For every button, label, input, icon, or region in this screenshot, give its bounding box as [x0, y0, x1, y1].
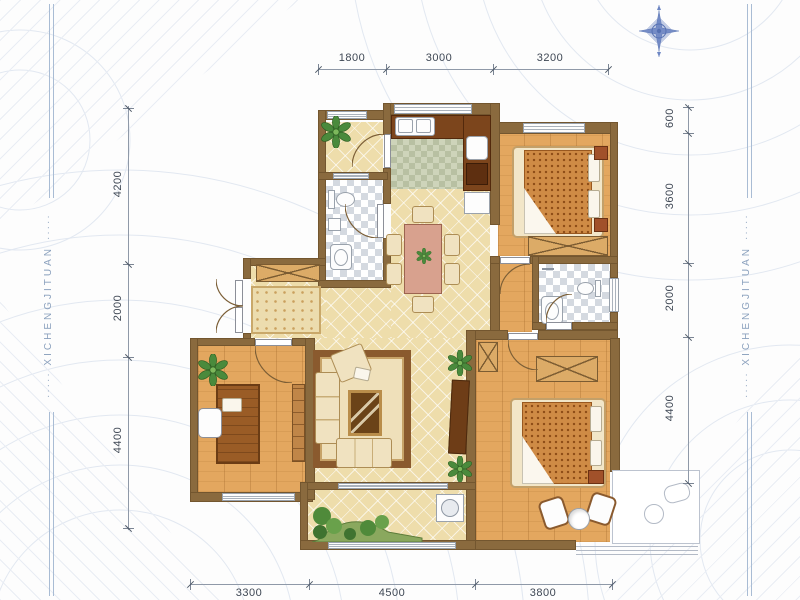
dining-chair	[412, 296, 434, 313]
washer-drum	[441, 499, 459, 517]
side-dots: ·····	[43, 214, 54, 241]
sink-basin	[334, 249, 348, 266]
side-label: XICHENGJITUAN	[43, 246, 54, 366]
bookshelf	[292, 384, 305, 462]
dim-tick	[683, 133, 694, 134]
desk	[216, 384, 260, 464]
wall-segment	[610, 122, 618, 278]
dim-label: 3600	[664, 166, 676, 226]
dim-label: 2000	[664, 268, 676, 328]
window-sill-lines	[576, 543, 698, 555]
dim-tick	[612, 579, 613, 590]
wall-segment	[243, 258, 251, 279]
pillow	[590, 406, 602, 432]
fridge	[464, 192, 490, 214]
entry-rug	[251, 286, 321, 334]
desk-chair	[198, 408, 222, 438]
frame-line-left-bottom	[49, 412, 54, 596]
bath-cabinet	[328, 218, 341, 231]
dim-tick	[123, 528, 134, 529]
floor-hall	[326, 288, 391, 338]
dim-tick	[683, 483, 694, 484]
frame-line-right-bottom	[747, 412, 752, 596]
dim-line-bottom	[190, 584, 612, 585]
door-arc-bedroom-2	[255, 346, 292, 383]
frame-line-right-top	[747, 4, 752, 198]
wall-segment	[490, 256, 500, 338]
door-arc-master	[508, 340, 538, 370]
door-leaf	[500, 257, 530, 264]
door-leaf	[384, 134, 391, 168]
dining-chair	[386, 234, 402, 256]
dim-label: 4400	[664, 378, 676, 438]
door-arc-balcony-top	[352, 134, 385, 167]
dim-label: 1800	[322, 52, 382, 64]
dim-label: 4500	[362, 587, 422, 599]
nightstand	[588, 470, 604, 484]
compass-icon	[633, 5, 685, 57]
dim-label: 2000	[112, 278, 124, 338]
wall-segment	[383, 103, 391, 135]
dim-label: 600	[664, 88, 676, 148]
dim-line-top	[318, 69, 608, 70]
wardrobe	[536, 356, 598, 382]
side-brand-text-left: ····· XICHENGJITUAN ·····	[43, 200, 54, 412]
plant-icon	[197, 354, 229, 386]
cabinet	[478, 342, 498, 372]
dim-tick	[123, 264, 134, 265]
door-leaf	[508, 333, 538, 340]
window	[338, 483, 448, 489]
plant-icon	[447, 456, 473, 482]
window	[333, 173, 369, 179]
dim-tick	[683, 263, 694, 264]
window	[523, 123, 585, 133]
door-arc-entry-upper	[216, 279, 243, 306]
dim-line-left	[128, 106, 129, 530]
dim-label: 4400	[112, 410, 124, 470]
wall-segment	[530, 256, 618, 264]
cooktop	[466, 163, 488, 185]
dim-tick	[123, 108, 134, 109]
dim-tick	[386, 64, 387, 75]
dim-tick	[683, 337, 694, 338]
coffee-table	[348, 390, 382, 436]
dim-tick	[123, 357, 134, 358]
mirror	[542, 268, 554, 270]
toilet-tank	[595, 280, 601, 297]
floorplan-page: ····· XICHENGJITUAN ····· ····· XICHENGJ…	[0, 0, 800, 600]
round-table	[568, 508, 590, 530]
dining-chair	[444, 234, 460, 256]
kitchen-sink-2	[466, 136, 488, 160]
pillow	[590, 440, 602, 466]
dim-label: 3300	[219, 587, 279, 599]
door-leaf	[546, 322, 572, 330]
door-arc-bathroom-1	[345, 204, 378, 238]
sofa-main	[336, 438, 392, 468]
dim-tick	[683, 107, 694, 108]
dim-tick	[318, 64, 319, 75]
side-brand-text-right: ····· XICHENGJITUAN ·····	[741, 200, 752, 412]
dim-label: 3200	[520, 52, 580, 64]
dim-tick	[475, 579, 476, 590]
door-arc-bathroom-2	[546, 294, 572, 322]
dim-line-right	[688, 105, 689, 483]
sink-basin	[416, 119, 431, 133]
entry-cabinet	[256, 264, 320, 282]
door-leaf	[377, 204, 384, 238]
stool-sketch	[644, 504, 664, 524]
door-arc-entry-lower	[216, 306, 243, 333]
dim-label: 3800	[513, 587, 573, 599]
wall-segment	[490, 103, 500, 225]
dining-chair	[386, 263, 402, 285]
dim-tick	[190, 579, 191, 590]
dim-label: 3000	[409, 52, 469, 64]
dim-tick	[493, 64, 494, 75]
toilet-bowl	[577, 282, 594, 295]
wall-segment	[318, 280, 391, 288]
plant-icon	[447, 350, 473, 376]
sink-basin	[398, 119, 413, 133]
side-label: XICHENGJITUAN	[741, 246, 752, 366]
wall-segment	[532, 256, 539, 330]
nightstand	[594, 146, 608, 160]
toilet-tank	[328, 190, 335, 209]
wall-segment	[190, 338, 255, 346]
wardrobe	[528, 236, 608, 256]
dining-chair	[444, 263, 460, 285]
dim-tick	[608, 64, 609, 75]
sofa-chaise	[315, 372, 340, 444]
frame-line-left-top	[49, 4, 54, 198]
wall-segment	[538, 330, 618, 340]
dining-chair	[412, 206, 434, 223]
dim-tick	[309, 579, 310, 590]
window	[394, 104, 472, 114]
side-dots: ·····	[741, 372, 752, 399]
window	[609, 278, 619, 312]
door-leaf	[255, 339, 292, 346]
plant-icon	[320, 116, 352, 148]
side-dots: ·····	[43, 372, 54, 399]
pillow	[588, 190, 600, 218]
side-dots: ·····	[741, 214, 752, 241]
wall-segment	[490, 256, 500, 264]
table-centerpiece-plant-icon	[416, 248, 432, 264]
wall-segment	[610, 338, 620, 472]
window	[222, 493, 295, 501]
nightstand	[594, 218, 608, 232]
floor-kitchen	[391, 139, 463, 189]
desk-item	[222, 398, 242, 412]
wall-segment	[300, 482, 308, 548]
door-arc-bedroom-1	[500, 264, 530, 294]
wall-segment	[466, 540, 576, 550]
wall-segment	[572, 322, 618, 330]
balcony-garden	[310, 494, 428, 542]
dim-label: 4200	[112, 154, 124, 214]
window	[328, 542, 456, 549]
